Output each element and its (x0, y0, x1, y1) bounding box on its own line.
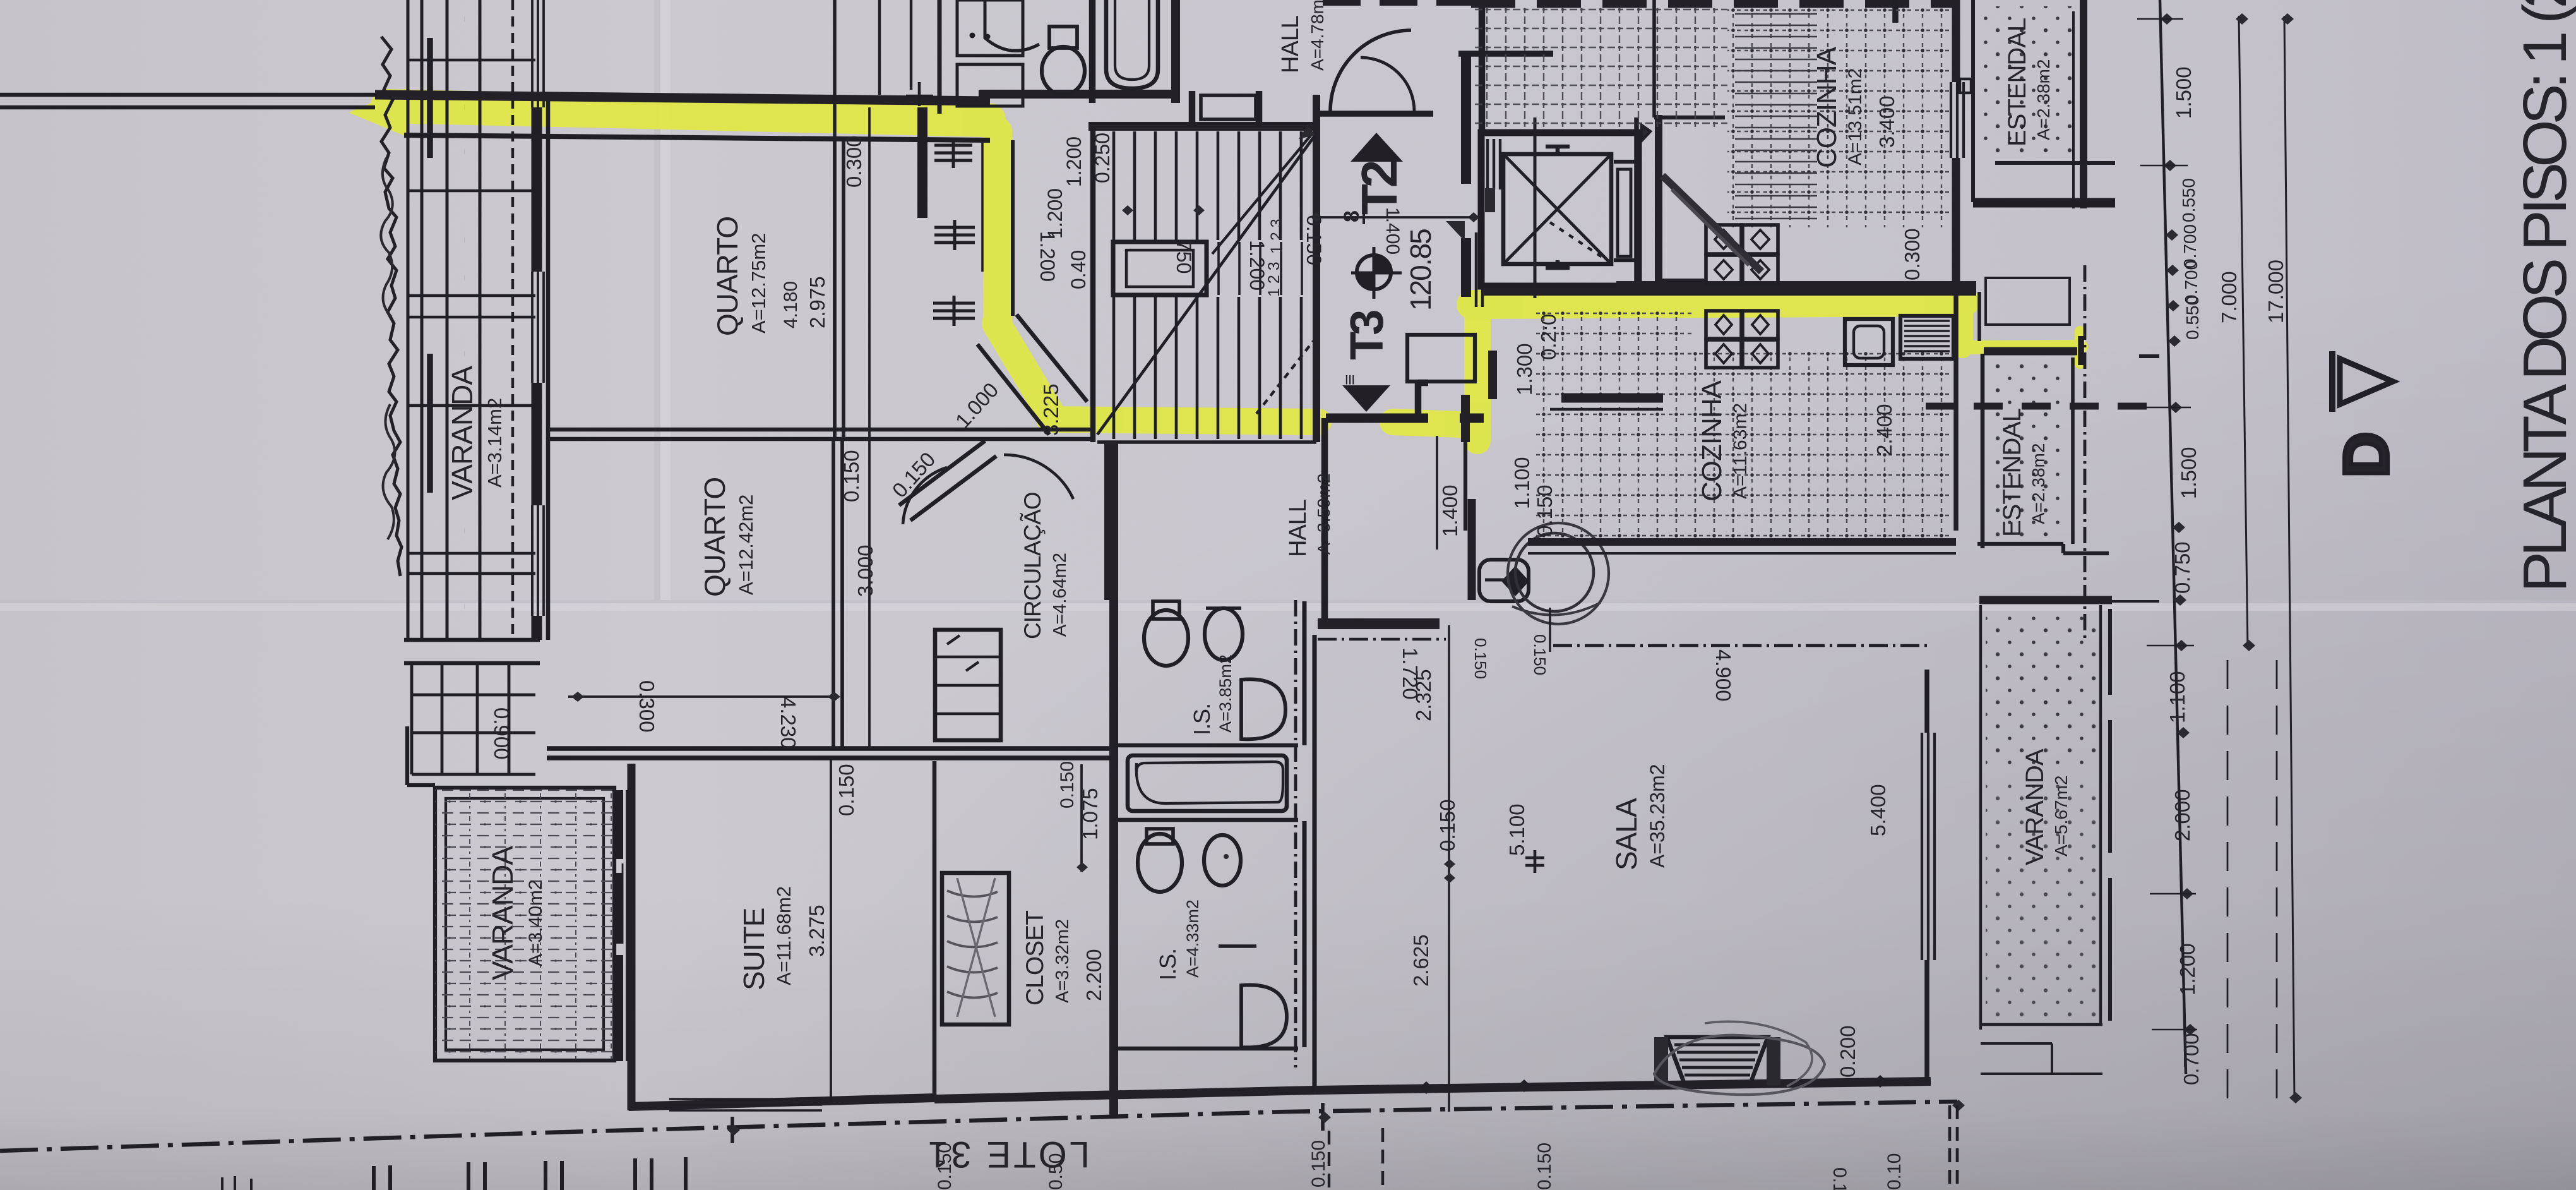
svg-text:A=4.33m2: A=4.33m2 (1183, 899, 1202, 978)
svg-text:A=13.51m2: A=13.51m2 (1845, 68, 1866, 165)
svg-text:0.100: 0.100 (1829, 1167, 1850, 1190)
svg-text:0.50: 0.50 (1046, 1153, 1066, 1190)
svg-text:A=3.85m2: A=3.85m2 (1216, 654, 1235, 733)
svg-text:1.500: 1.500 (2177, 447, 2200, 499)
svg-text:A=2.38m2: A=2.38m2 (2029, 443, 2048, 524)
svg-text:QUARTO: QUARTO (698, 478, 731, 597)
svg-text:7.000: 7.000 (2217, 271, 2241, 323)
svg-text:SUITE: SUITE (737, 908, 770, 990)
svg-text:A=3.59m2: A=3.59m2 (1314, 474, 1333, 555)
svg-text:CIRCULAÇÃO: CIRCULAÇÃO (1020, 492, 1046, 639)
svg-text:0.150: 0.150 (1471, 638, 1490, 679)
svg-text:A=12.75m2: A=12.75m2 (748, 233, 770, 334)
svg-text:SALA: SALA (1610, 798, 1643, 870)
svg-text:0.150: 0.150 (835, 764, 858, 816)
svg-text:0.550: 0.550 (2179, 178, 2198, 222)
svg-text:1.300: 1.300 (1513, 343, 1536, 395)
svg-text:HALL: HALL (1277, 16, 1304, 73)
svg-text:2.200: 2.200 (1082, 949, 1106, 1001)
svg-text:0.750: 0.750 (2171, 541, 2194, 594)
svg-text:120.85: 120.85 (1404, 229, 1437, 311)
svg-text:2.000: 2.000 (2171, 789, 2194, 841)
svg-text:A=11.68m2: A=11.68m2 (773, 886, 795, 985)
svg-text:0.200: 0.200 (1836, 1025, 1859, 1078)
svg-text:2.400: 2.400 (1873, 404, 1896, 456)
svg-text:3.000: 3.000 (854, 544, 877, 597)
svg-text:0.900: 0.900 (490, 707, 513, 760)
svg-text:A=12.42m2: A=12.42m2 (735, 495, 757, 595)
svg-text:4.230: 4.230 (777, 697, 800, 749)
svg-text:A=3.14m2: A=3.14m2 (484, 398, 506, 488)
svg-text:A=3.32m2: A=3.32m2 (1052, 919, 1073, 1003)
svg-text:VARANDA: VARANDA (446, 366, 479, 500)
svg-text:0.300: 0.300 (1900, 228, 1924, 280)
svg-text:T3: T3 (1340, 311, 1393, 360)
svg-text:0.150: 0.150 (1436, 799, 1459, 851)
svg-text:ESTENDAL: ESTENDAL (2003, 18, 2031, 147)
svg-text:1 2 3: 1 2 3 (1265, 261, 1283, 297)
svg-text:1.500: 1.500 (2172, 66, 2195, 119)
svg-text:VARANDA: VARANDA (486, 846, 519, 980)
svg-text:1.100: 1.100 (2166, 671, 2189, 723)
svg-text:A=4.64m2: A=4.64m2 (1050, 553, 1070, 637)
svg-text:1.400: 1.400 (1382, 207, 1403, 255)
svg-text:0.150: 0.150 (1533, 484, 1556, 537)
svg-text:D: D (2331, 432, 2402, 478)
svg-text:4.900: 4.900 (1712, 649, 1735, 702)
svg-text:1.400: 1.400 (1438, 484, 1462, 537)
svg-text:0.150: 0.150 (1303, 215, 1325, 265)
svg-text:A=3.40m2: A=3.40m2 (525, 879, 546, 966)
svg-text:A=35.23m2: A=35.23m2 (1646, 764, 1669, 868)
svg-text:COZINHA: COZINHA (1696, 380, 1727, 502)
svg-text:CLOSET: CLOSET (1022, 911, 1049, 1006)
svg-text:1.200: 1.200 (1036, 231, 1059, 282)
svg-text:0.300: 0.300 (635, 680, 659, 733)
svg-text:1.720: 1.720 (1398, 647, 1422, 700)
svg-text:5.400: 5.400 (1866, 784, 1890, 836)
svg-text:0.10: 0.10 (1884, 1153, 1905, 1190)
svg-text:0.550: 0.550 (2183, 296, 2202, 340)
svg-text:0.150: 0.150 (840, 450, 863, 502)
svg-text:A=4.78m2: A=4.78m2 (1308, 0, 1327, 71)
svg-text:0.700: 0.700 (2179, 1033, 2203, 1085)
svg-text:17.000: 17.000 (2264, 260, 2287, 323)
svg-text:5.100: 5.100 (1505, 803, 1529, 856)
svg-text:1 2 3: 1 2 3 (1268, 219, 1285, 254)
svg-text:1.100: 1.100 (1510, 457, 1534, 509)
svg-text:0.150: 0.150 (1530, 634, 1549, 675)
svg-text:1.075: 1.075 (1078, 788, 1102, 840)
svg-text:0.40: 0.40 (1067, 250, 1090, 289)
svg-text:COZINHA: COZINHA (1811, 46, 1842, 168)
svg-text:8: 8 (1340, 210, 1364, 222)
svg-text:3.225: 3.225 (1039, 383, 1063, 436)
svg-text:0.250: 0.250 (1091, 133, 1114, 183)
svg-text:3.275: 3.275 (805, 905, 828, 957)
svg-text:0.150: 0.150 (1534, 1143, 1555, 1190)
svg-text:0.150: 0.150 (1057, 761, 1078, 808)
svg-text:0.150: 0.150 (934, 1143, 955, 1190)
svg-text:750: 750 (1172, 240, 1195, 273)
svg-text:A=11.63m2: A=11.63m2 (1730, 403, 1751, 499)
svg-text:HALL: HALL (1285, 500, 1311, 557)
svg-text:I.S.: I.S. (1189, 704, 1215, 735)
svg-text:2.975: 2.975 (806, 276, 829, 328)
svg-text:4.180: 4.180 (780, 281, 801, 328)
svg-text:≡: ≡ (1340, 374, 1361, 385)
svg-text:PLANTA DOS PISOS: 1 (2, 3): PLANTA DOS PISOS: 1 (2, 3) (2510, 0, 2576, 592)
svg-text:VARANDA: VARANDA (2021, 748, 2049, 865)
svg-text:A=2.38m2: A=2.38m2 (2034, 59, 2053, 140)
svg-text:0.300: 0.300 (842, 135, 866, 188)
svg-text:3.400: 3.400 (1875, 95, 1899, 148)
svg-text:I.S.: I.S. (1155, 949, 1181, 980)
svg-text:QUARTO: QUARTO (711, 217, 744, 336)
svg-text:0.2:0: 0.2:0 (1537, 314, 1560, 360)
svg-text:A=5.67m2: A=5.67m2 (2051, 776, 2071, 856)
svg-text:1.200: 1.200 (1063, 136, 1085, 187)
svg-text:ESTENDAL: ESTENDAL (1998, 409, 2026, 537)
svg-text:2.625: 2.625 (1409, 934, 1433, 987)
svg-text:0.150: 0.150 (1308, 1140, 1329, 1187)
svg-text:1.200: 1.200 (2176, 943, 2199, 995)
